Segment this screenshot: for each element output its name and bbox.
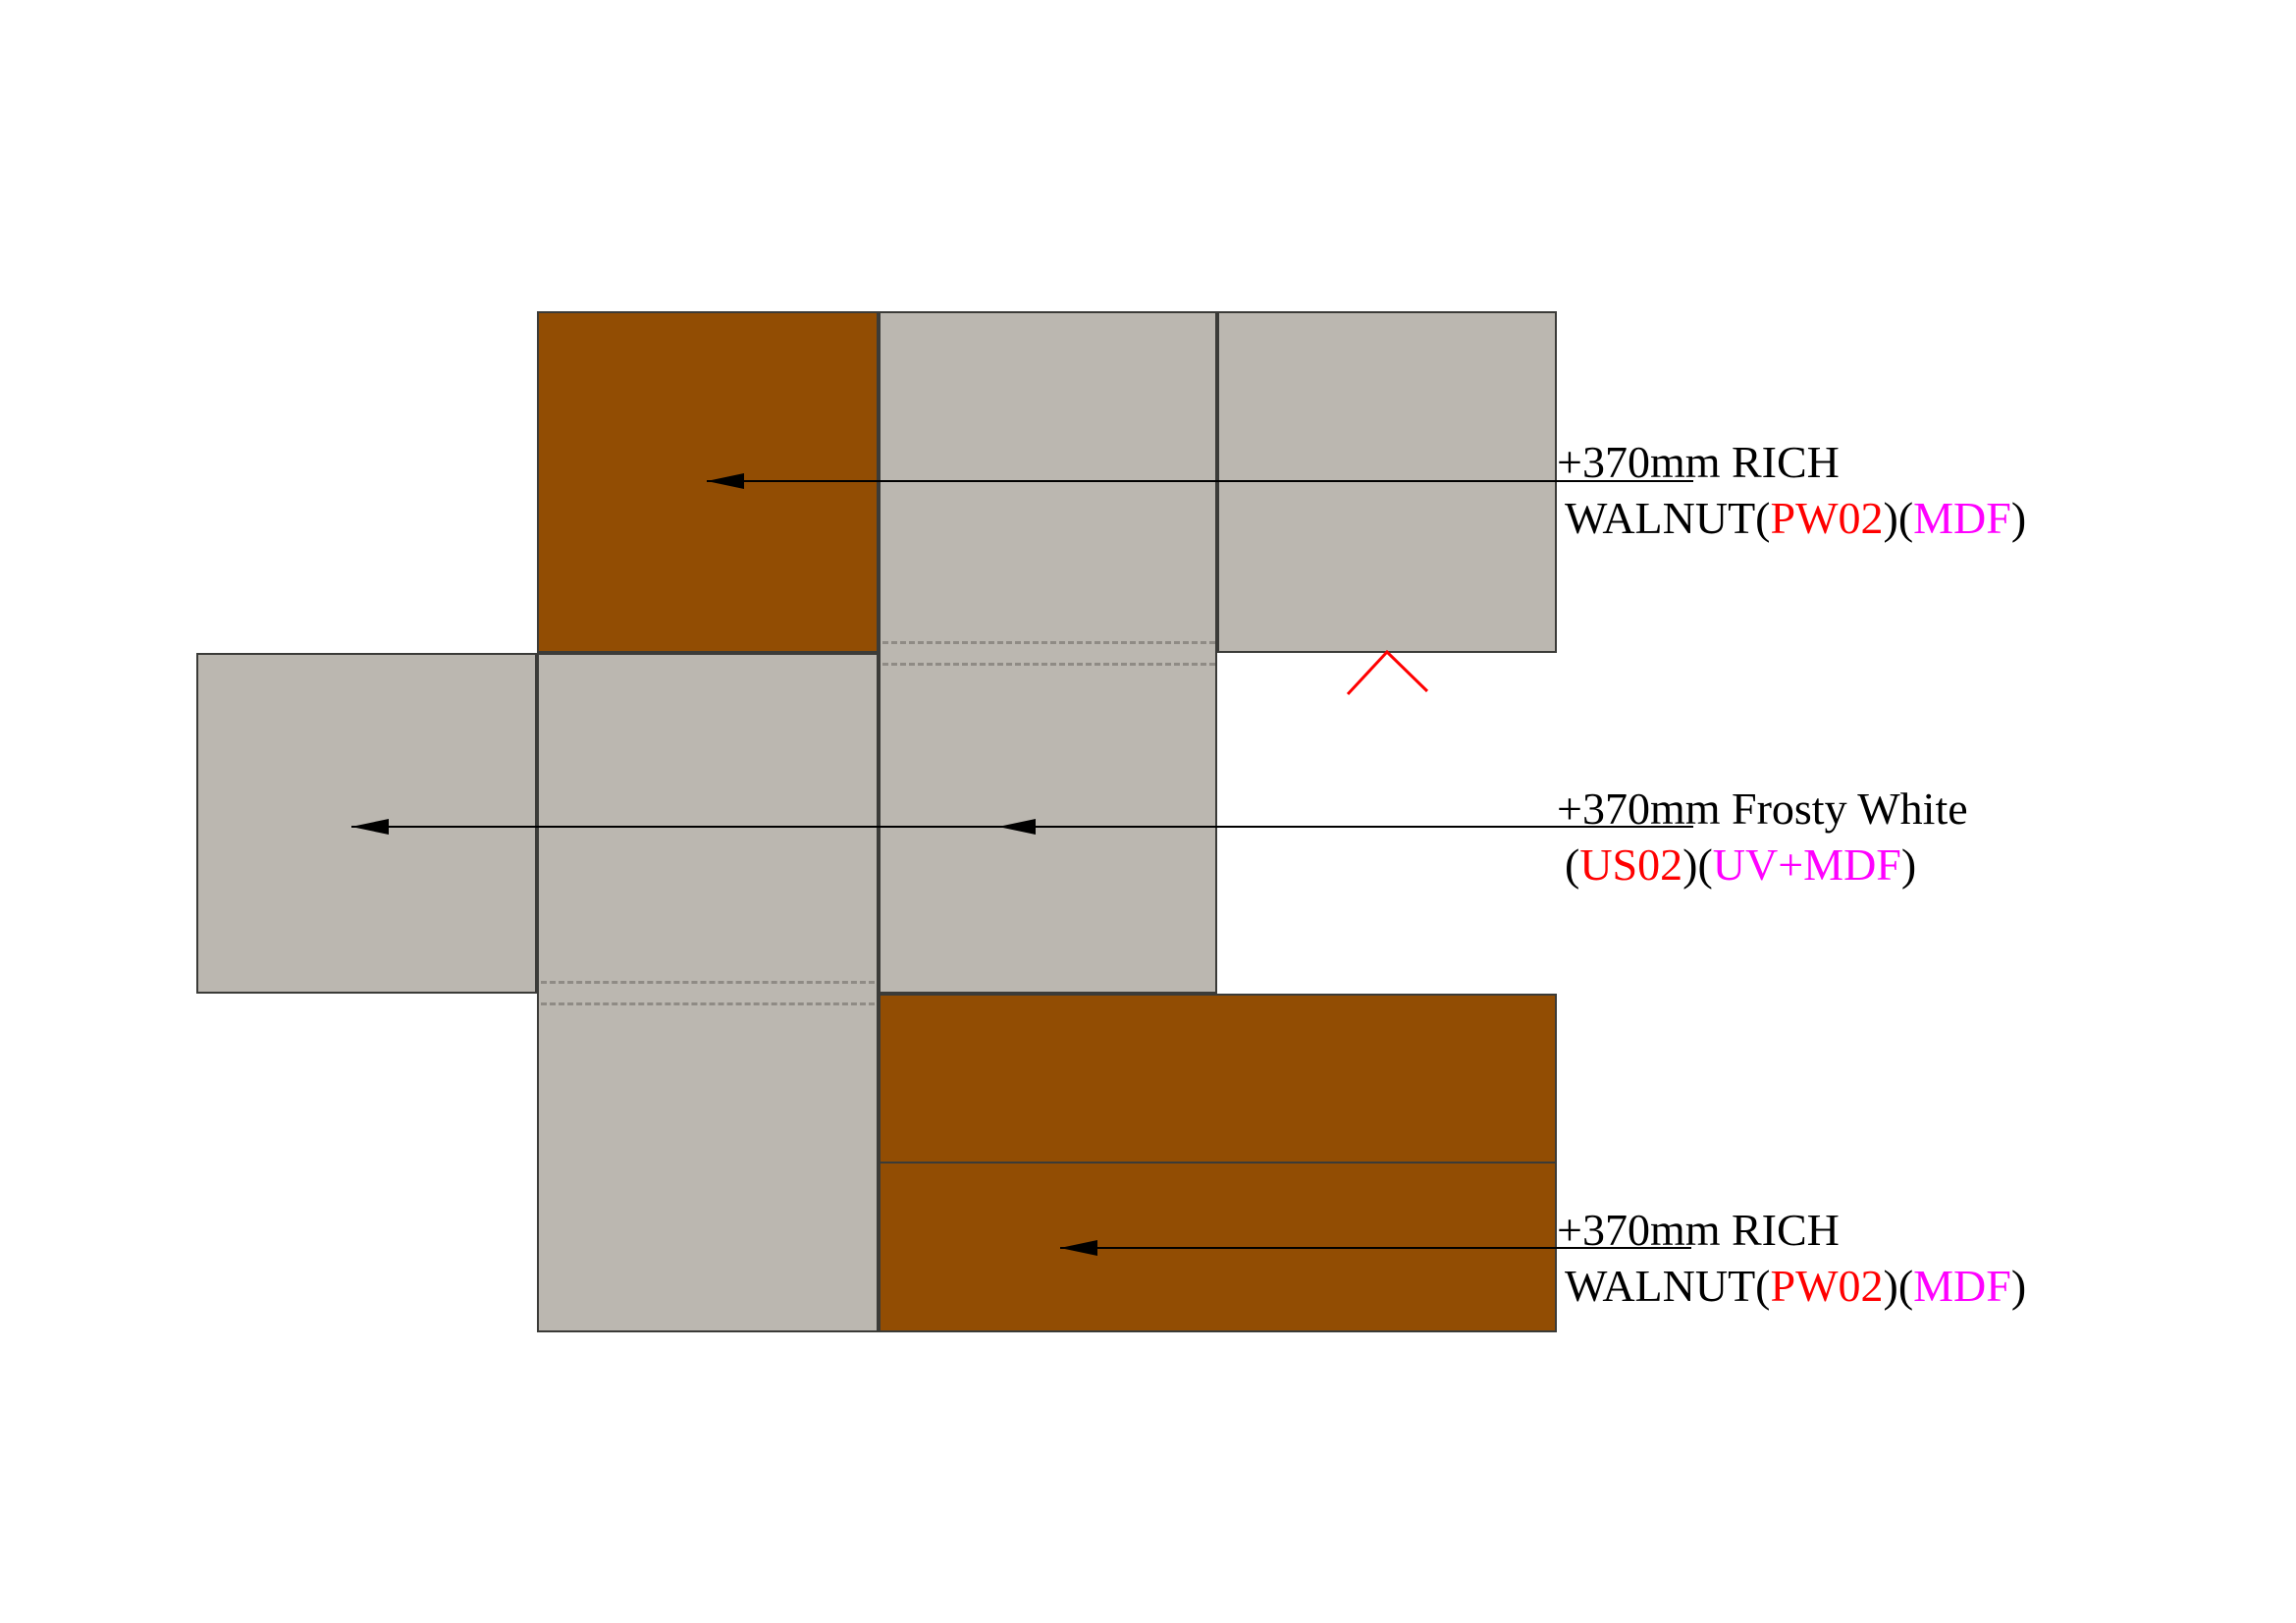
dashed-joint-line: [882, 663, 1215, 666]
callout-text: )(: [1884, 1261, 1914, 1311]
material-code: MDF: [1913, 1261, 2011, 1311]
arrowhead-icon: [1060, 1240, 1097, 1256]
lower-middle-gray-panel: [537, 653, 879, 1332]
top-right-gray-panel: [1217, 311, 1557, 653]
arrowhead-icon: [707, 473, 744, 489]
callout-text: WALNUT(: [1565, 493, 1771, 543]
callout-text: ): [1901, 839, 1916, 890]
finish-code: PW02: [1771, 493, 1884, 543]
finish-code: US02: [1579, 839, 1682, 890]
dashed-joint-line: [882, 641, 1215, 644]
dashed-joint-line: [541, 1002, 875, 1005]
material-code: UV+MDF: [1713, 839, 1901, 890]
callout-middle-frosty-white: +370mm Frosty White (US02)(UV+MDF): [1557, 781, 1968, 893]
callout-line1: +370mm RICH: [1557, 1202, 2026, 1258]
callout-bottom-walnut: +370mm RICH WALNUT(PW02)(MDF): [1557, 1202, 2026, 1314]
upper-middle-gray-panel: [879, 311, 1217, 994]
dashed-joint-line: [541, 981, 875, 984]
callout-text: )(: [1682, 839, 1713, 890]
callout-text: (: [1565, 839, 1579, 890]
bottom-walnut-upper-panel: [879, 994, 1557, 1163]
elevation-drawing: +370mm RICH WALNUT(PW02)(MDF) +370mm Fro…: [0, 0, 2296, 1623]
callout-line2: WALNUT(PW02)(MDF): [1557, 490, 2026, 546]
leader-line-top: [707, 480, 1693, 482]
material-code: MDF: [1913, 493, 2011, 543]
callout-line1: +370mm RICH: [1557, 434, 2026, 490]
finish-code: PW02: [1771, 1261, 1884, 1311]
callout-text: WALNUT(: [1565, 1261, 1771, 1311]
callout-text: )(: [1884, 493, 1914, 543]
callout-line2: (US02)(UV+MDF): [1557, 837, 1968, 893]
callout-text: ): [2011, 1261, 2026, 1311]
arrowhead-icon: [351, 819, 389, 835]
callout-text: ): [2011, 493, 2026, 543]
arrowhead-icon: [998, 819, 1036, 835]
callout-line1: +370mm Frosty White: [1557, 781, 1968, 837]
red-chevron-mark: [1340, 643, 1438, 704]
callout-top-walnut: +370mm RICH WALNUT(PW02)(MDF): [1557, 434, 2026, 546]
callout-line2: WALNUT(PW02)(MDF): [1557, 1258, 2026, 1314]
